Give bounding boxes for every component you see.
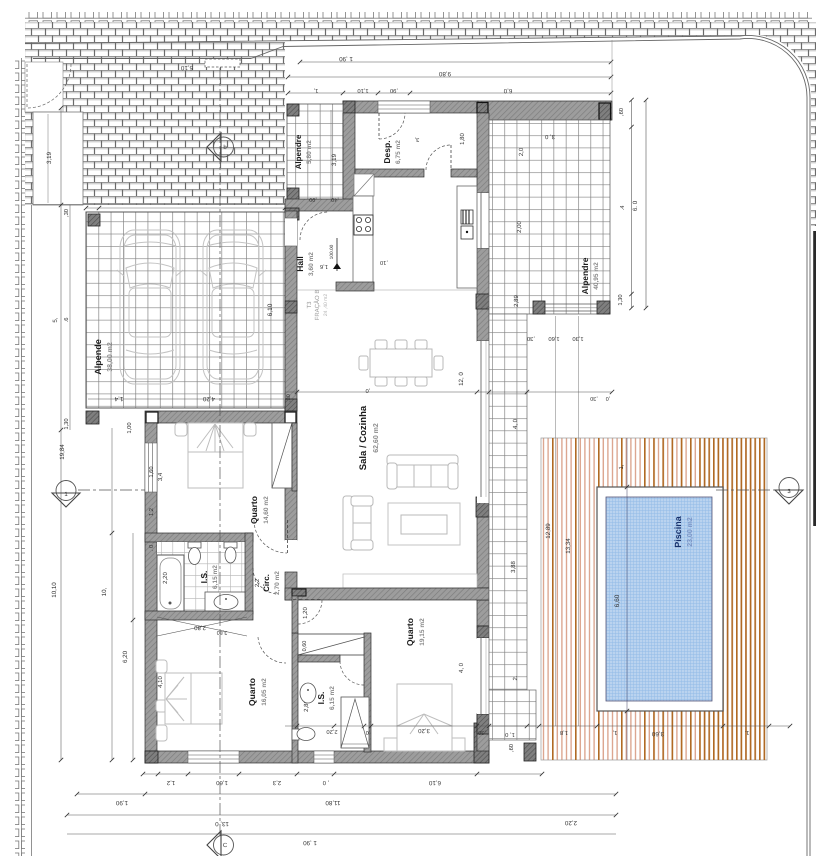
svg-text:14,60 m2: 14,60 m2 xyxy=(263,496,270,524)
svg-text:Quarto: Quarto xyxy=(247,678,257,706)
svg-text:12,89: 12,89 xyxy=(545,523,552,539)
svg-text:1,80: 1,80 xyxy=(459,133,466,145)
svg-text:3,88: 3,88 xyxy=(510,561,517,573)
svg-text:Quarto: Quarto xyxy=(249,496,259,524)
svg-text:3,60: 3,60 xyxy=(651,730,664,737)
svg-text:62,60 m2: 62,60 m2 xyxy=(373,423,380,453)
svg-text:1, 0: 1, 0 xyxy=(505,731,515,738)
svg-text:2.: 2. xyxy=(512,675,519,680)
svg-text:Alpende: Alpende xyxy=(93,339,103,375)
svg-text:Hall: Hall xyxy=(295,256,305,272)
svg-text:,60: ,60 xyxy=(618,108,625,116)
svg-text:,30: ,30 xyxy=(286,394,292,402)
svg-text:I.S.: I.S. xyxy=(199,571,209,584)
svg-text:2,0: 2,0 xyxy=(518,147,525,156)
svg-text:,0: ,0 xyxy=(366,387,371,394)
svg-text:100.00: 100.00 xyxy=(329,244,335,259)
svg-text:FRAÇÃO B: FRAÇÃO B xyxy=(313,290,321,321)
svg-text:Piscina: Piscina xyxy=(673,515,683,548)
svg-text:Circ.: Circ. xyxy=(262,574,271,592)
svg-text:6,60: 6,60 xyxy=(614,594,621,607)
svg-text:1,60: 1,60 xyxy=(548,335,559,342)
svg-text:1,30: 1,30 xyxy=(63,418,70,429)
svg-text:24 ,40 m2: 24 ,40 m2 xyxy=(323,294,329,316)
svg-text:5,80 m2: 5,80 m2 xyxy=(306,140,313,164)
svg-text:1,6: 1,6 xyxy=(320,263,328,270)
svg-text:3,60 m2: 3,60 m2 xyxy=(308,252,315,276)
svg-text:4,20: 4,20 xyxy=(202,395,215,402)
svg-text:10,10: 10,10 xyxy=(51,582,58,598)
svg-text:Desp.: Desp. xyxy=(382,140,392,163)
svg-text:3,80: 3,80 xyxy=(217,629,228,635)
svg-text:Alpendre: Alpendre xyxy=(580,257,590,294)
svg-text:I.S.: I.S. xyxy=(316,692,326,705)
svg-text:12, 0: 12, 0 xyxy=(458,372,465,386)
svg-text:1,2: 1,2 xyxy=(166,779,175,786)
svg-text:3,20: 3,20 xyxy=(418,727,430,734)
svg-text:2,80: 2,80 xyxy=(194,624,206,631)
svg-text:13,34: 13,34 xyxy=(565,538,572,554)
svg-text:1,00: 1,00 xyxy=(126,422,133,433)
svg-text:,0: ,0 xyxy=(366,729,371,735)
svg-text:1,90: 1,90 xyxy=(115,799,128,806)
svg-text:.4: .4 xyxy=(620,205,626,211)
svg-text:.6: .6 xyxy=(63,318,70,323)
svg-text:1,: 1, xyxy=(612,729,617,735)
svg-text:11,80: 11,80 xyxy=(325,799,341,806)
svg-text:3, 0: 3, 0 xyxy=(544,133,555,140)
svg-text:1,30: 1,30 xyxy=(617,294,624,305)
svg-text:2,20: 2,20 xyxy=(162,572,169,584)
svg-text:5,: 5, xyxy=(52,317,59,322)
svg-text:6,10: 6,10 xyxy=(428,779,441,786)
svg-text:1,8: 1,8 xyxy=(560,729,568,736)
svg-text:19,84: 19,84 xyxy=(59,444,66,460)
svg-text:, 0: , 0 xyxy=(322,779,329,786)
svg-text:1.: 1. xyxy=(744,729,749,735)
svg-text:C: C xyxy=(223,842,228,849)
svg-text:2,00: 2,00 xyxy=(516,221,523,233)
svg-text:4, 0: 4, 0 xyxy=(458,662,465,673)
svg-text:13, 0: 13, 0 xyxy=(215,820,229,827)
svg-text:1 ,90: 1 ,90 xyxy=(303,839,317,846)
svg-text:1,60: 1,60 xyxy=(216,779,228,786)
svg-text:1,30: 1,30 xyxy=(572,335,583,342)
svg-text:6,10: 6,10 xyxy=(267,303,274,316)
svg-text:Sala / Cozinha: Sala / Cozinha xyxy=(358,405,369,470)
svg-text:5,10: 5,10 xyxy=(180,64,193,71)
svg-text:Alpendre: Alpendre xyxy=(294,134,303,169)
svg-text:,10: ,10 xyxy=(380,259,388,266)
svg-text:2,20: 2,20 xyxy=(326,728,337,735)
svg-text:1,20: 1,20 xyxy=(302,607,309,619)
svg-text:,0: ,0 xyxy=(606,395,611,401)
svg-text:0,60: 0,60 xyxy=(302,641,308,652)
svg-text:,30: ,30 xyxy=(590,395,598,401)
svg-text:2,3: 2,3 xyxy=(272,779,281,786)
svg-text:2,2: 2,2 xyxy=(254,578,261,587)
svg-text:,40: ,40 xyxy=(331,196,339,202)
svg-text:,30: ,30 xyxy=(63,209,70,217)
svg-text:2,70 m2: 2,70 m2 xyxy=(274,571,281,595)
svg-text:2,89: 2,89 xyxy=(513,295,520,307)
svg-text:40,95 m2: 40,95 m2 xyxy=(593,262,600,290)
svg-text:10,: 10, xyxy=(101,587,108,596)
svg-text:,60: ,60 xyxy=(508,744,515,752)
svg-text:6,0: 6,0 xyxy=(503,87,512,94)
svg-text:6,20: 6,20 xyxy=(122,650,129,663)
svg-text:3,: 3, xyxy=(414,136,419,143)
svg-text:19,15 m2: 19,15 m2 xyxy=(419,618,426,646)
svg-text:1,: 1, xyxy=(618,464,625,469)
svg-text:9,80: 9,80 xyxy=(438,70,451,77)
svg-text:,30: ,30 xyxy=(478,729,486,735)
svg-text:23,00 m2: 23,00 m2 xyxy=(687,517,694,547)
svg-text:3,19: 3,19 xyxy=(331,153,338,166)
svg-text:6. 0: 6. 0 xyxy=(632,200,639,211)
svg-text:6,15 m2: 6,15 m2 xyxy=(329,686,336,710)
svg-text:3,19: 3,19 xyxy=(46,151,53,164)
svg-text:Quarto: Quarto xyxy=(405,618,415,646)
svg-text:4, 0: 4, 0 xyxy=(512,418,519,429)
svg-text:1,: 1, xyxy=(313,87,318,93)
svg-text:,90: ,90 xyxy=(390,87,398,94)
svg-text:16,05 m2: 16,05 m2 xyxy=(261,678,268,706)
svg-text:,90: ,90 xyxy=(309,196,317,202)
svg-text:3,4: 3,4 xyxy=(157,472,164,481)
svg-text:,30: ,30 xyxy=(527,335,535,342)
svg-text:38,00 m2: 38,00 m2 xyxy=(107,342,114,372)
svg-text:. 0: . 0 xyxy=(148,545,155,551)
svg-text:2,20: 2,20 xyxy=(564,819,577,826)
svg-text:1,10: 1,10 xyxy=(357,87,368,94)
svg-text:6,15 m2: 6,15 m2 xyxy=(212,565,219,589)
svg-text:1,4: 1,4 xyxy=(114,395,123,402)
svg-text:1,2: 1,2 xyxy=(148,508,155,516)
svg-text:4,10: 4,10 xyxy=(157,676,164,688)
svg-text:1 ,90: 1 ,90 xyxy=(339,55,353,62)
svg-text:T3: T3 xyxy=(306,301,313,309)
svg-text:6,75 m2: 6,75 m2 xyxy=(395,140,402,164)
svg-text:1,60: 1,60 xyxy=(148,466,155,477)
